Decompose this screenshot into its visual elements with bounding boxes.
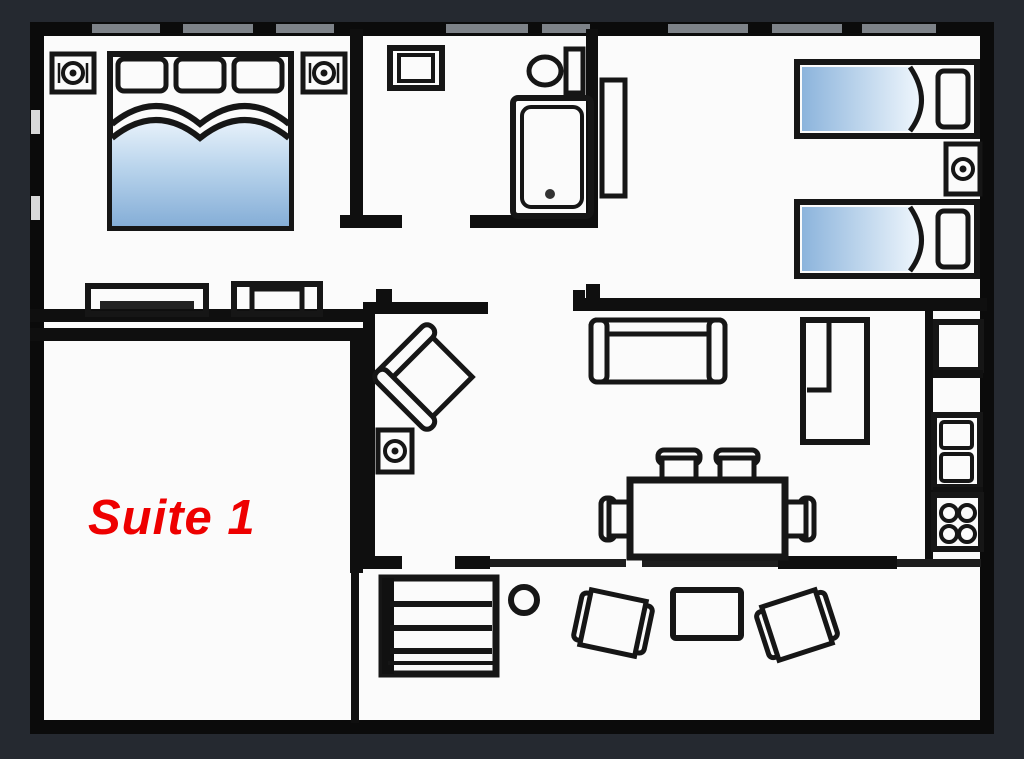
double-bed [110,54,291,228]
window-segment [276,24,334,33]
wall-suite-right [350,328,363,573]
chair-seat [580,590,646,656]
wall-hall-bottom [363,302,488,314]
window-segment [183,24,253,33]
sofa [591,320,725,382]
sliding-door-panel [490,559,626,567]
twin-bed-bottom [797,202,977,276]
sofa-seat [603,334,713,382]
sliding-door-panel [897,559,981,567]
wall-living-left [363,314,375,560]
open-door-leaf [602,80,625,196]
counter-divider [933,370,983,378]
wall-suite-terrace-partition [351,573,359,723]
pillow [938,211,968,267]
window-segment [31,110,40,134]
floor-plan-image: Suite 1 [0,0,1024,759]
window-segment [31,196,40,220]
suite-label: Suite 1 [88,491,256,545]
wall-nub [376,289,392,302]
drain [545,189,555,199]
dining-table [630,480,785,557]
sofa-arm [709,320,725,382]
bed-blanket [802,207,922,271]
pillow [938,71,968,127]
windows-top-wall [92,24,936,33]
patio-table [673,590,741,638]
wall-suite-top [30,328,363,341]
wall-bathroom-bottom-left [340,215,402,228]
window-segment [668,24,748,33]
window-segment [542,24,590,33]
bed-blanket [802,67,922,131]
wall-master-right [350,29,363,216]
wall-living-bottom-b [778,556,897,569]
window-segment [92,24,160,33]
pillow [176,59,224,91]
pillow [118,59,166,91]
window-segment [772,24,842,33]
twin-bed-top [797,62,977,136]
sofa-arm [591,320,607,382]
window-segment [862,24,936,33]
window-segment [446,24,528,33]
terrace-post [511,587,537,613]
wall-twin-living-divider [573,298,987,311]
pillow [234,59,282,91]
wall-living-bottom-a [455,556,490,569]
patio-chair-left [572,588,654,658]
wall-living-left-foot [363,556,402,569]
floor-plan-svg: Suite 1 [0,0,1024,759]
